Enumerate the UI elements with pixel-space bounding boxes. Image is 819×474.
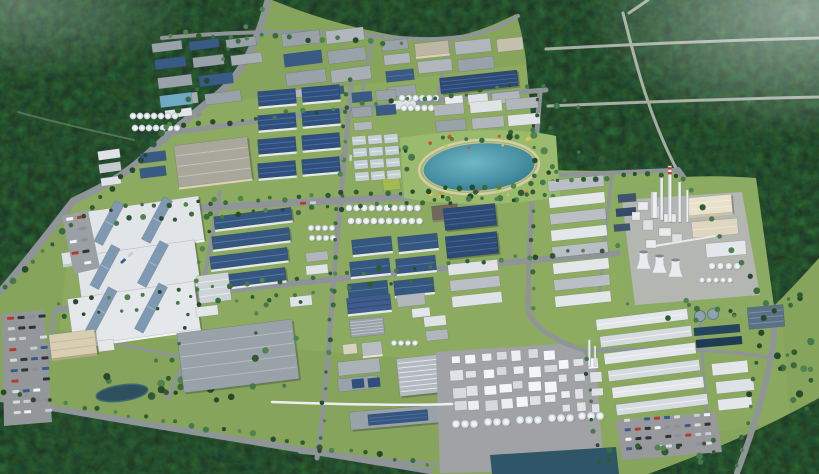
ribbed-hall-small bbox=[349, 316, 385, 337]
greenhouse-row bbox=[355, 171, 370, 181]
factory-blue-grid bbox=[301, 108, 340, 129]
plant-structure bbox=[632, 212, 640, 220]
factory-small-e2 bbox=[376, 89, 397, 101]
factory-k bbox=[361, 341, 382, 358]
preheater-tower bbox=[651, 192, 658, 219]
lakeside-hall bbox=[436, 119, 467, 133]
greenhouse-row bbox=[368, 134, 383, 144]
silo-group bbox=[484, 418, 511, 426]
plant-chimney bbox=[660, 174, 664, 221]
skylight-panel bbox=[368, 377, 381, 387]
factory-blue-grid bbox=[301, 84, 340, 105]
plant-chimney-striped bbox=[668, 166, 672, 223]
factory-blue-grid bbox=[257, 112, 296, 133]
factory-small-e2 bbox=[352, 106, 373, 118]
plant-hall-cream bbox=[687, 194, 734, 218]
skylight-panel bbox=[352, 378, 365, 388]
greenhouse-row bbox=[387, 169, 402, 179]
plant-navy bbox=[614, 223, 631, 231]
factory-k bbox=[426, 329, 449, 341]
greenhouse-row bbox=[354, 159, 369, 169]
lakeside-hall bbox=[434, 103, 465, 117]
greenhouse-row bbox=[352, 135, 367, 145]
greenhouse-row bbox=[353, 147, 368, 157]
plant-structure bbox=[638, 202, 648, 210]
factory-blue-grid bbox=[257, 88, 296, 109]
plant-structure bbox=[659, 228, 671, 236]
plant-navy bbox=[618, 193, 637, 203]
chem-stack bbox=[594, 346, 597, 367]
silo-group bbox=[548, 414, 575, 422]
office-annex bbox=[97, 339, 114, 352]
substation bbox=[196, 272, 231, 304]
greenhouse-row bbox=[371, 170, 386, 180]
silo-group bbox=[516, 416, 543, 424]
factory-blue-mid bbox=[347, 236, 393, 301]
factory-blue-grid bbox=[301, 156, 340, 177]
plant-structure bbox=[643, 220, 653, 230]
factory-k bbox=[412, 307, 431, 318]
hall-cream bbox=[496, 37, 523, 53]
plant-tanks bbox=[699, 277, 733, 283]
plant-chimney bbox=[678, 182, 682, 223]
factory-k bbox=[343, 343, 358, 354]
factory-small-e2 bbox=[376, 104, 397, 116]
factory-blue-mid bbox=[393, 233, 439, 298]
greenhouse-row bbox=[385, 145, 400, 155]
greenhouse-row bbox=[370, 158, 385, 168]
silo-group bbox=[452, 420, 479, 428]
factory-k bbox=[424, 315, 447, 327]
factory-small-e2 bbox=[354, 121, 373, 131]
aerial-render bbox=[0, 0, 819, 474]
hall-beige-large bbox=[174, 136, 254, 189]
factory-blue-grid bbox=[257, 160, 296, 181]
chem-stack bbox=[588, 340, 591, 367]
plant-chimney bbox=[686, 190, 689, 223]
greenhouse-row bbox=[384, 133, 399, 143]
factory-blue-grid bbox=[257, 136, 296, 157]
greenhouse-row bbox=[386, 157, 401, 167]
greenhouse-row bbox=[369, 146, 384, 156]
industrial-park-scene bbox=[0, 0, 819, 474]
factory-blue-grid bbox=[301, 132, 340, 153]
